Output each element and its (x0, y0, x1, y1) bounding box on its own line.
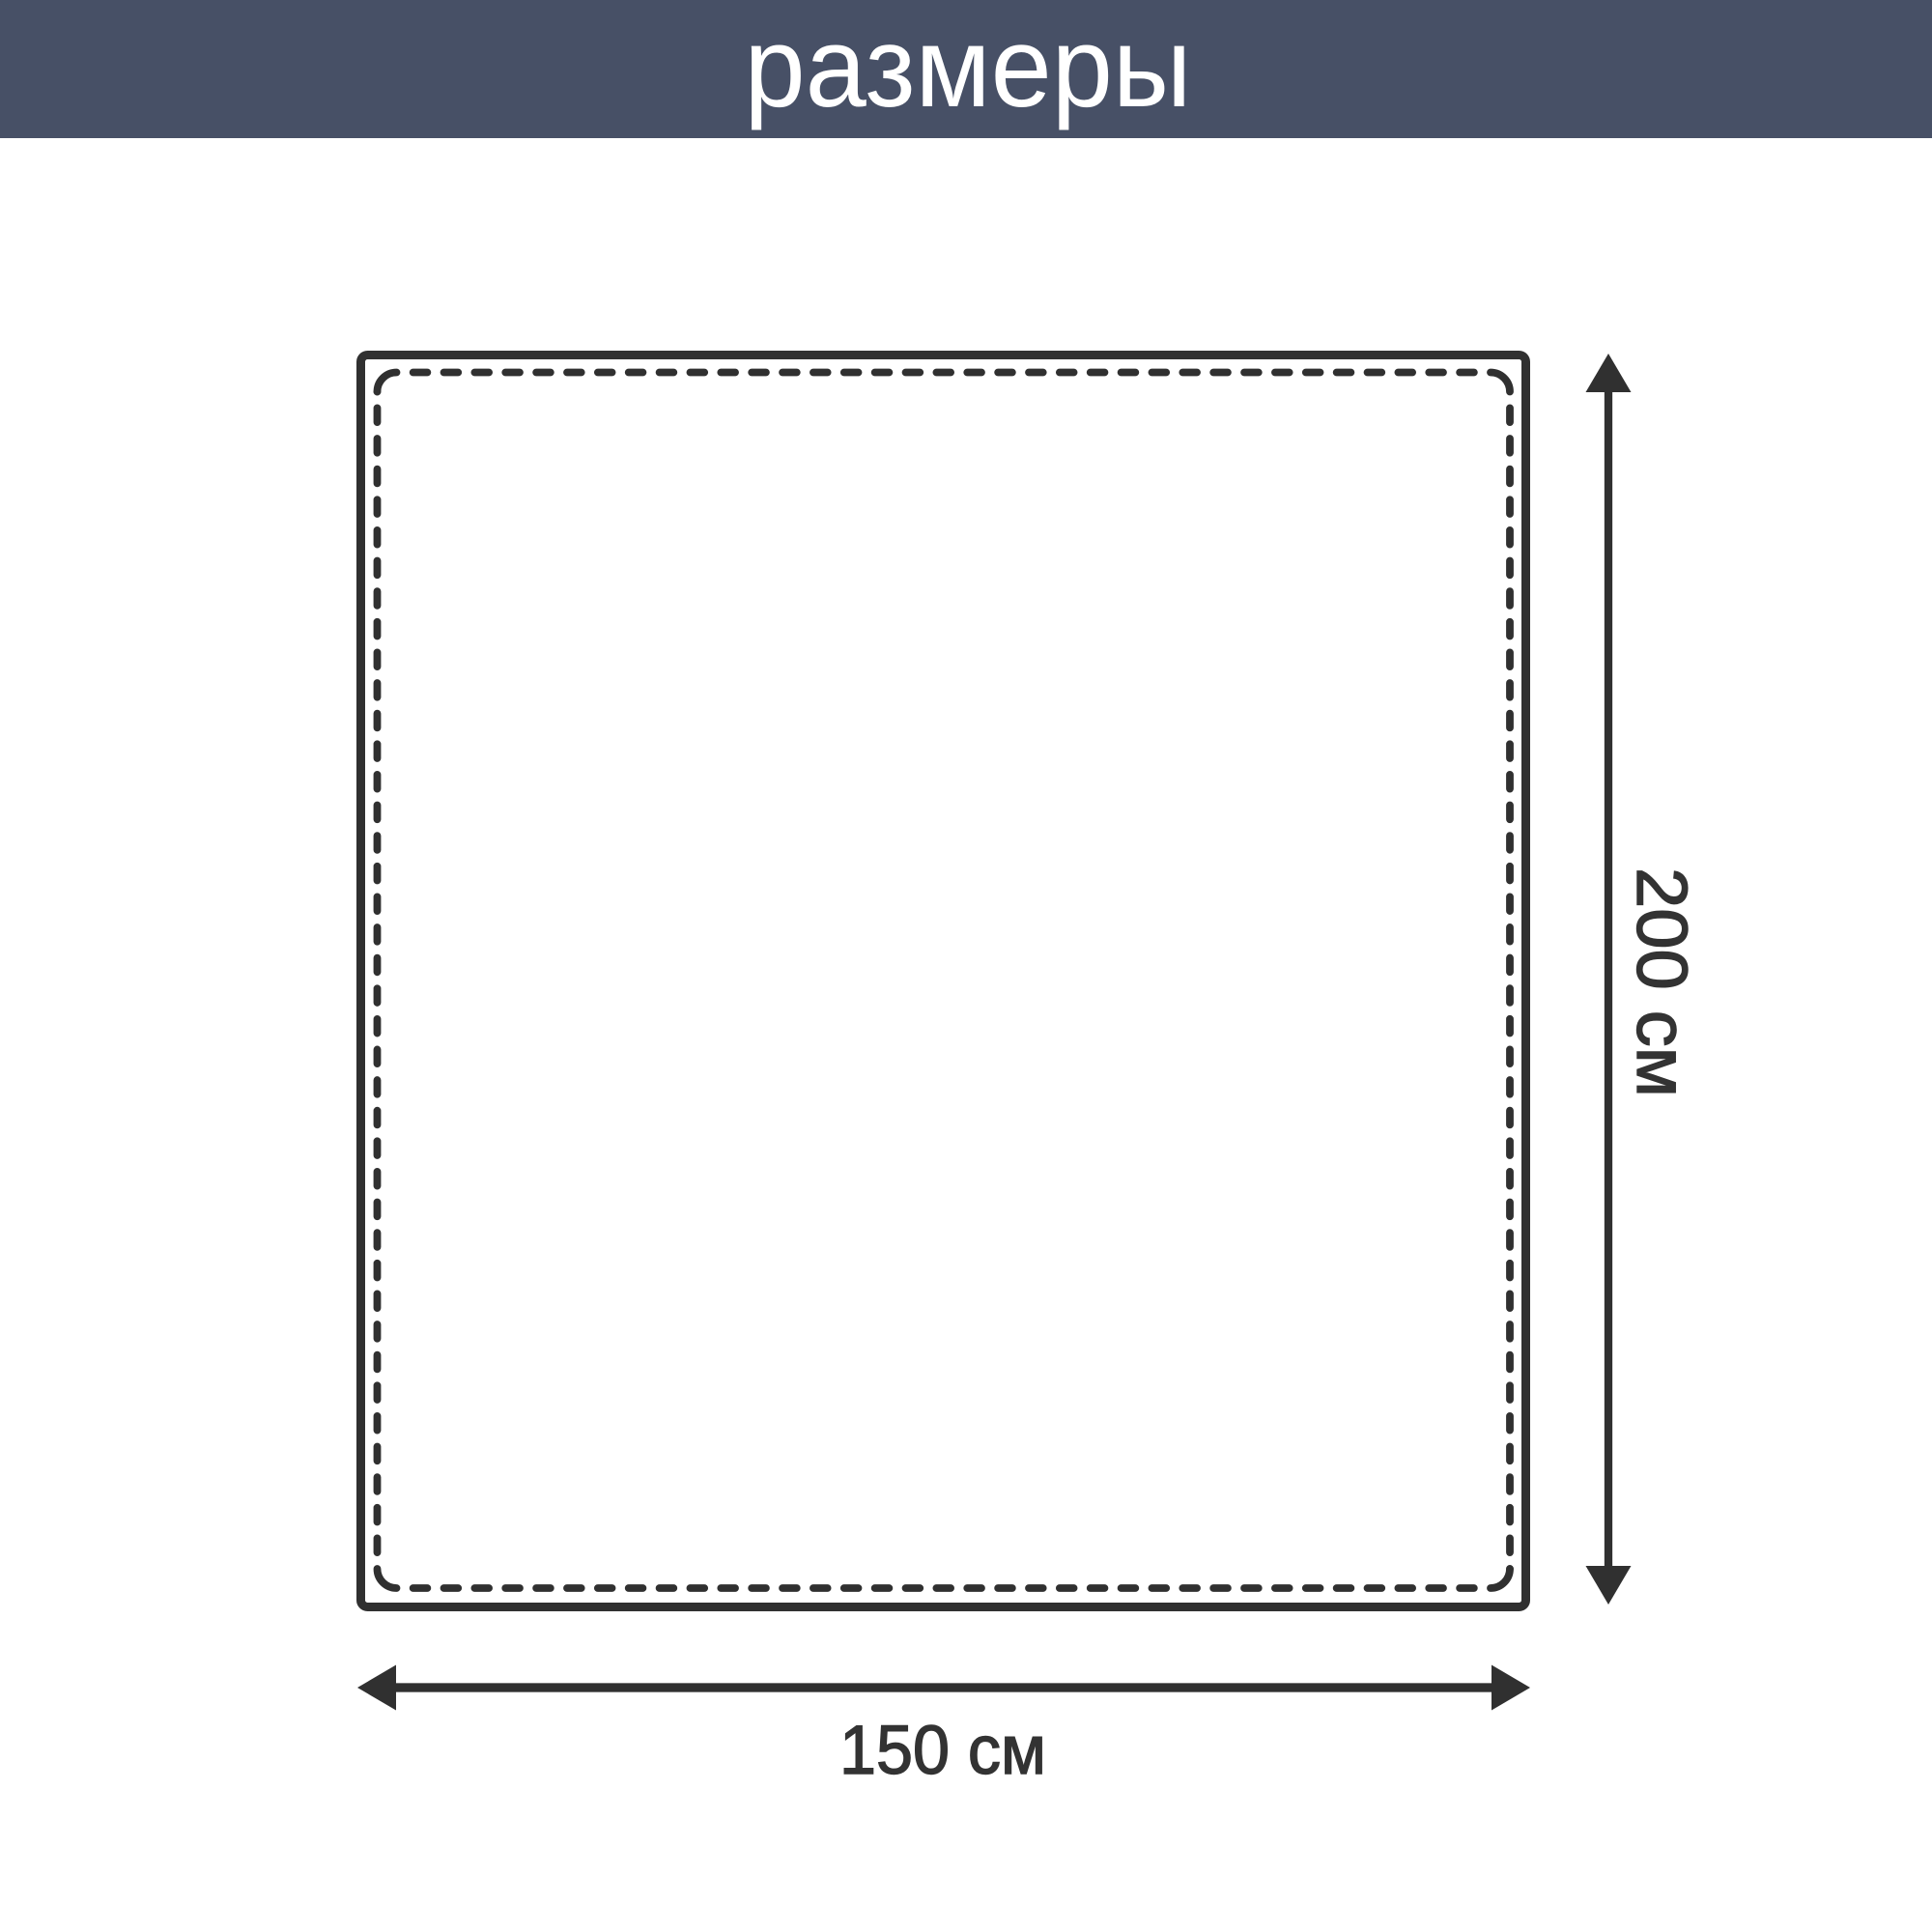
svg-text:200 см: 200 см (1622, 867, 1702, 1097)
svg-text:150 см: 150 см (839, 1713, 1046, 1789)
svg-text:размеры: размеры (745, 4, 1192, 131)
